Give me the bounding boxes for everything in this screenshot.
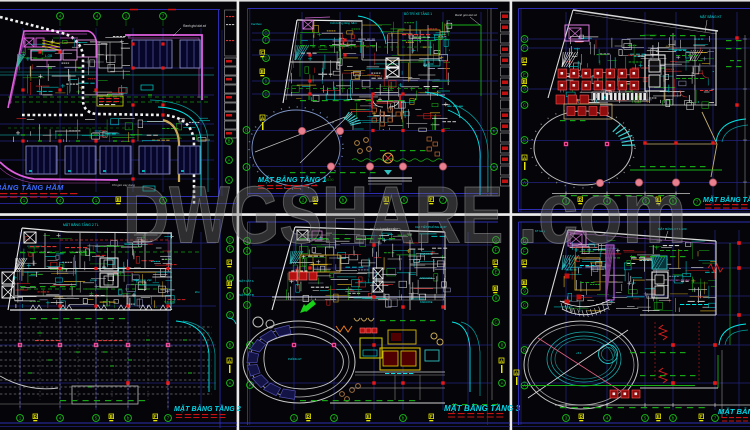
svg-text:Ranh gioi dat xd: Ranh gioi dat xd (455, 13, 477, 17)
svg-text:kho: kho (195, 290, 200, 294)
svg-text:7: 7 (714, 416, 717, 421)
svg-text:C: C (494, 320, 497, 325)
svg-text:1: 1 (19, 416, 22, 421)
svg-text:D: D (34, 414, 37, 419)
svg-text:C: C (523, 58, 526, 63)
svg-text:4: 4 (59, 416, 62, 421)
svg-text:Cat theo: Cat theo (251, 22, 262, 26)
svg-text:.com: .com (518, 164, 687, 261)
svg-text:BẰNG TẦNG HẦM: BẰNG TẦNG HẦM (0, 182, 64, 192)
svg-text:A: A (500, 359, 503, 364)
svg-text:9: 9 (495, 296, 498, 301)
svg-text:E: E (229, 276, 232, 281)
svg-text:MẶT BẰNG TẦNG 2 TL: MẶT BẰNG TẦNG 2 TL (63, 222, 99, 227)
svg-text:B: B (523, 280, 526, 285)
svg-text:A: A (261, 116, 264, 121)
svg-text:B: B (494, 286, 497, 291)
svg-text:7: 7 (696, 200, 699, 205)
svg-text:F: F (700, 414, 703, 419)
svg-text:5: 5 (644, 416, 647, 421)
svg-text:F: F (430, 414, 433, 419)
svg-text:C: C (523, 103, 526, 108)
svg-text:C: C (228, 260, 231, 265)
svg-text:E: E (523, 73, 526, 78)
svg-text:+5.1: +5.1 (576, 351, 582, 355)
svg-text:C: C (494, 260, 497, 265)
svg-text:A: A (245, 165, 248, 170)
svg-text:1: 1 (293, 416, 296, 421)
svg-text:B: B (228, 281, 231, 286)
svg-text:C: C (261, 50, 264, 55)
svg-text:4: 4 (606, 416, 609, 421)
svg-text:b: b (402, 416, 405, 421)
svg-text:BỐ TRÍ XE TẦNG 1: BỐ TRÍ XE TẦNG 1 (404, 11, 432, 16)
svg-text:B: B (523, 138, 526, 143)
svg-text:MẶT BẰNG TẦNG 3: MẶT BẰNG TẦNG 3 (444, 403, 521, 413)
svg-text:p.họp: p.họp (89, 278, 97, 282)
svg-text:KARAOKE: KARAOKE (420, 276, 433, 280)
svg-text:A: A (228, 359, 231, 364)
svg-text:7: 7 (162, 14, 165, 19)
svg-text:4: 4 (96, 14, 99, 19)
svg-text:C: C (228, 313, 231, 318)
svg-text:E: E (657, 414, 660, 419)
svg-text:B: B (229, 343, 232, 348)
svg-text:A: A (229, 381, 232, 386)
svg-text:MẶT BẰNG: MẶT BẰNG (718, 407, 750, 416)
svg-text:C: C (523, 303, 526, 308)
svg-text:9: 9 (523, 289, 526, 294)
svg-text:8: 8 (501, 343, 504, 348)
svg-text:B: B (523, 348, 526, 353)
svg-text:1: 1 (95, 198, 98, 203)
svg-text:DWGSHARE: DWGSHARE (123, 170, 503, 260)
svg-text:A: A (523, 156, 526, 161)
svg-text:3: 3 (565, 416, 568, 421)
svg-text:C: C (245, 303, 248, 308)
svg-text:MẶT BẰNG TẦ: MẶT BẰNG TẦ (703, 194, 750, 204)
svg-text:+0.00: +0.00 (426, 62, 434, 66)
svg-text:E: E (495, 270, 498, 275)
svg-text:b: b (127, 416, 130, 421)
svg-text:MẶT BẰNG KT: MẶT BẰNG KT (700, 14, 722, 19)
svg-text:MẶT BẰNG TẦNG 2: MẶT BẰNG TẦNG 2 (174, 403, 241, 413)
svg-text:D: D (307, 414, 310, 419)
svg-text:D: D (264, 56, 267, 61)
svg-text:A: A (228, 158, 231, 163)
svg-text:B: B (523, 79, 526, 84)
svg-text:L.OB: L.OB (45, 54, 52, 58)
svg-text:B: B (117, 197, 120, 202)
svg-text:5: 5 (95, 416, 98, 421)
svg-text:B: B (245, 128, 248, 133)
svg-text:Ranh gioi dat xd: Ranh gioi dat xd (183, 24, 206, 28)
svg-text:b: b (672, 416, 675, 421)
svg-text:A: A (515, 371, 518, 376)
svg-text:phòng làm việc: phòng làm việc (132, 278, 152, 282)
svg-text:D: D (580, 414, 583, 419)
svg-text:E: E (367, 414, 370, 419)
svg-text:K: K (493, 129, 496, 134)
svg-text:A: A (501, 381, 504, 386)
svg-text:B: B (228, 139, 231, 144)
svg-text:A: A (493, 165, 496, 170)
svg-text:MẶT CẮT B: MẶT CẮT B (239, 292, 254, 297)
svg-text:4: 4 (59, 14, 62, 19)
svg-text:4: 4 (59, 198, 62, 203)
svg-text:F: F (154, 414, 157, 419)
svg-text:1: 1 (23, 198, 26, 203)
svg-text:KARAOKE: KARAOKE (420, 300, 433, 304)
svg-text:4: 4 (333, 416, 336, 421)
svg-text:PHÒNG HT: PHÒNG HT (288, 356, 302, 361)
svg-text:B: B (261, 69, 264, 74)
svg-text:1: 1 (125, 14, 128, 19)
svg-text:trung tâm thể dục: trung tâm thể dục (668, 278, 690, 282)
svg-text:MẶT CẮT A: MẶT CẮT A (239, 278, 254, 283)
svg-text:9: 9 (229, 294, 232, 299)
svg-text:B: B (110, 414, 113, 419)
svg-text:7: 7 (167, 416, 170, 421)
